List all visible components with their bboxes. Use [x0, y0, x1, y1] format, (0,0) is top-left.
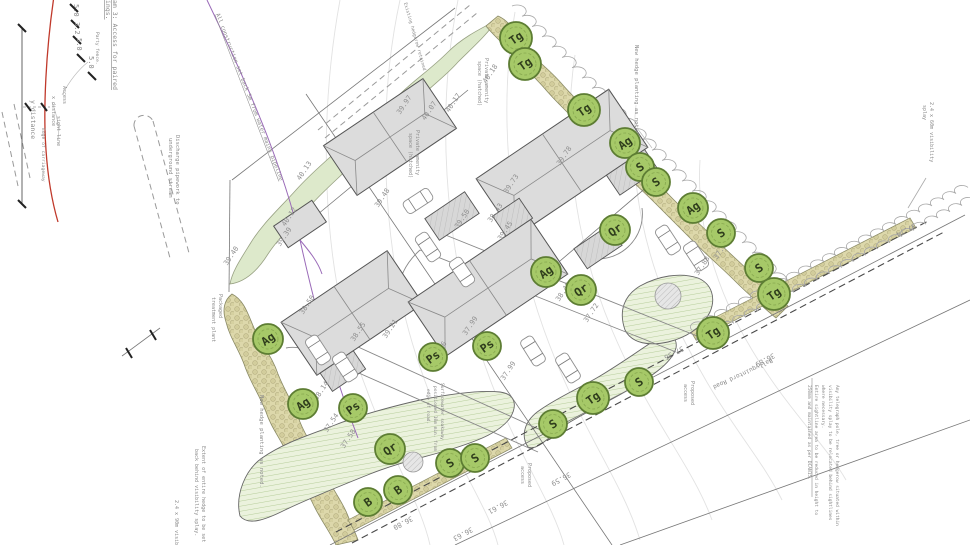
boundary-dimension-mark	[122, 328, 160, 358]
proposed-access-label-line2: access	[682, 384, 688, 402]
visibility-splay-90-label: 2.4 x 90m visibility splay	[173, 500, 179, 545]
lane-edge-dashed	[134, 126, 170, 258]
lane-edge-dashed	[2, 112, 18, 186]
tree-symbol: Ps	[473, 332, 501, 360]
tree-symbol: Ag	[288, 389, 318, 419]
inset-dim: 5.0	[87, 56, 95, 69]
dimension-tick	[77, 54, 85, 62]
hedge-extent-note: Extent of entire hedge to be set	[200, 446, 206, 542]
soakaway-note: Surfacewater soakaway	[439, 383, 445, 440]
building-block-1	[323, 79, 456, 196]
spot-level: 37.99	[499, 360, 517, 382]
inset-dim: 5.0	[72, 4, 80, 17]
car	[554, 352, 582, 385]
water-main-note: All construction set back 5m from water …	[214, 13, 284, 182]
amenity-note-line2: space (hatched)	[407, 133, 413, 178]
tree-symbol: B	[384, 476, 412, 504]
sightline-note: where necessary.	[820, 385, 826, 428]
tree-symbol: Ag	[253, 324, 283, 354]
car	[402, 187, 435, 215]
tree-symbol: Qr	[375, 434, 405, 464]
dimension-tick	[88, 72, 96, 80]
site-plan-drawing: am 3: Access for paired ings. 5.0 3.2 5.…	[0, 0, 970, 545]
proposed-access-label-line2: access	[519, 466, 525, 484]
tree-symbol: Ag	[678, 193, 708, 223]
new-hedge-note-northeast: New hedge planting as noted.	[633, 45, 639, 138]
tree-symbol: S	[625, 368, 653, 396]
tree-symbol: Ag	[531, 257, 561, 287]
sightline-note: 250mm and maintained as per DCAN15.	[806, 385, 812, 480]
sightline-note: visibility splay to be relocated behind …	[827, 385, 833, 521]
splay-leader-line	[908, 178, 926, 208]
inset-dim: 5.0	[75, 38, 83, 51]
site-plan-sheet: am 3: Access for paired ings. 5.0 3.2 5.…	[0, 0, 970, 545]
tree-symbol: S	[745, 254, 773, 282]
y-distance-label: y distance	[29, 100, 37, 139]
tree-symbol: S	[461, 444, 489, 472]
car	[519, 335, 547, 368]
treatment-plant-note: Packaged	[217, 294, 223, 318]
tree-symbol: S	[707, 219, 735, 247]
party-fence-label: Party fence.	[94, 32, 100, 65]
site-boundary-west	[229, 180, 230, 292]
tree-symbol: Ps	[339, 394, 367, 422]
access-label: Access	[61, 86, 67, 104]
tree-symbol: Tg	[568, 94, 600, 126]
spot-level: 39.48	[373, 187, 391, 209]
existing-tree-symbol	[403, 452, 423, 472]
existing-tree-symbol	[655, 283, 681, 309]
inset-diagram-access: am 3: Access for paired ings. 5.0 3.2 5.…	[18, 0, 119, 222]
discharge-note-line2: underground stream	[167, 138, 173, 198]
visibility-splay-60-label: 2.4 x 60m visibility	[928, 102, 934, 162]
tree-symbol: S	[642, 168, 670, 196]
proposed-access-label: Proposed	[689, 381, 695, 405]
car-body	[402, 187, 435, 215]
car-body	[554, 352, 582, 385]
discharge-note: Discharge pipework to	[174, 135, 180, 205]
spot-level: 36.63	[452, 525, 474, 542]
soakaway-note-line2: positioned 10m min. from	[432, 386, 438, 451]
hedge-retained-note: Existing hedgerow retained	[402, 2, 427, 72]
dimension-tick	[41, 103, 47, 111]
sightline-note: Entire sightline area to be reduced in h…	[813, 385, 819, 515]
inset-title-line2: ings.	[104, 0, 112, 20]
sightline-note: Any telegraph pole, tree or hedgerow sit…	[834, 385, 840, 526]
edge-of-carriageway-label: Edge of carriageway	[40, 128, 46, 182]
tree-symbol: Tg	[577, 382, 609, 414]
tree-symbol: Ps	[419, 343, 447, 371]
car-body	[519, 335, 547, 368]
tree-symbol: B	[354, 488, 382, 516]
spot-level: 36.61	[487, 498, 509, 515]
inset-dim: 3.2	[73, 22, 81, 35]
tree-symbol: Qr	[600, 215, 630, 245]
hedge-extent-note-line2: back behind visibility splay.	[193, 449, 199, 536]
tree-symbol: Tg	[509, 48, 541, 80]
water-main-branch	[300, 240, 322, 274]
soakaway-note-line3: edge of road.	[425, 389, 431, 424]
sight-line-label: sight line	[55, 116, 61, 146]
lane-end-cap	[134, 115, 153, 126]
tree-symbol: Tg	[697, 317, 729, 349]
tree-symbol: S	[436, 449, 464, 477]
tree-symbol: S	[539, 410, 567, 438]
field-line	[620, 420, 970, 545]
treatment-plant-note-line2: treatment plant	[210, 297, 216, 342]
spot-level: 36.59	[550, 470, 572, 487]
tree-symbol: Tg	[758, 278, 790, 310]
tree-symbol: Qr	[566, 275, 596, 305]
car-body	[654, 224, 682, 257]
building-block-3	[281, 251, 435, 394]
amenity-note-line2: space (hatched)	[476, 61, 482, 106]
proposed-access-label: Proposed	[526, 463, 532, 487]
visibility-splay-60-label-line2: splay	[921, 105, 927, 120]
amenity-note: Private amenity	[414, 130, 420, 175]
new-hedge-note-west: New hedge planting as noted.	[258, 395, 264, 488]
car	[654, 224, 682, 257]
